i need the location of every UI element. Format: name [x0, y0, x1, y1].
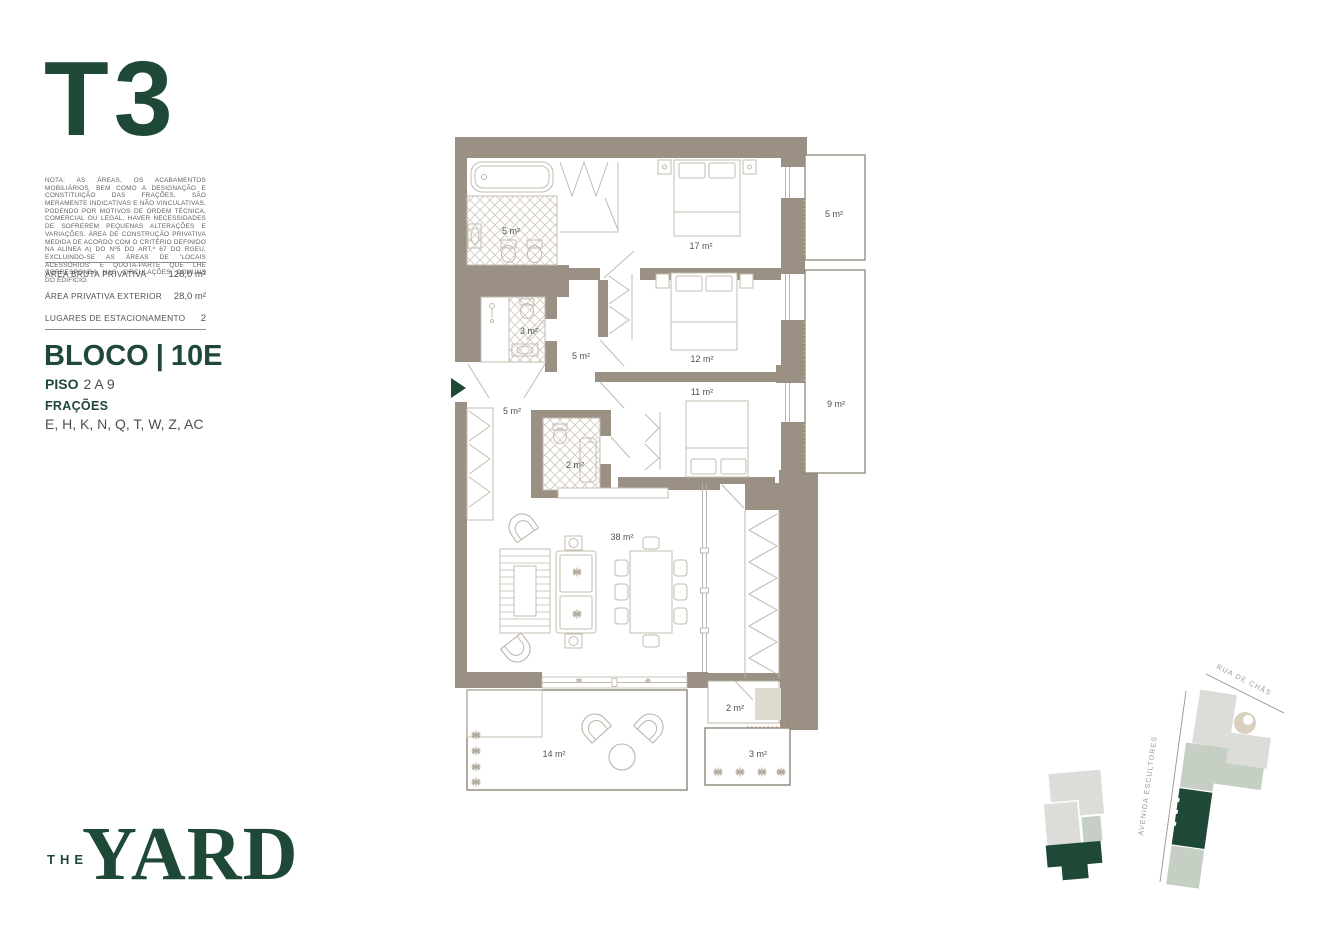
- map-highlight-building: [1046, 841, 1104, 882]
- room-area-label: 9 m²: [827, 399, 845, 409]
- logo-yard-text: YARD: [82, 816, 299, 892]
- map-highlight-building: [1172, 788, 1213, 849]
- unit-type-title: T3: [44, 46, 178, 152]
- table-row: ÁREA BRUTA PRIVATIVA 128,0 m²: [45, 263, 206, 285]
- room-area-label: 12 m²: [690, 354, 713, 364]
- terrace: [467, 690, 687, 790]
- bedroom-17-furniture: [560, 160, 756, 236]
- fractions-value: E, H, K, N, Q, T, W, Z, AC: [45, 416, 203, 432]
- balcony-5: [805, 155, 866, 260]
- balcony-9: [805, 270, 866, 473]
- area-label: ÁREA BRUTA PRIVATIVA: [45, 269, 146, 279]
- area-value: 128,0 m²: [169, 269, 207, 280]
- bedroom-11-furniture: [645, 401, 748, 477]
- kitchen-units: [467, 408, 493, 520]
- floor-range: PISO2 A 9: [45, 376, 115, 392]
- wc: [543, 418, 600, 490]
- street-label-rua-de-chas: RUA DE CHÃS: [1215, 662, 1273, 698]
- block-separator: |: [149, 340, 171, 372]
- bedroom-12-furniture: [609, 273, 753, 350]
- room-area-label: 11 m²: [691, 387, 713, 397]
- room-area-label: 5 m²: [572, 351, 590, 361]
- table-row: ÁREA PRIVATIVA EXTERIOR 28,0 m²: [45, 285, 206, 307]
- table-row: LUGARES DE ESTACIONAMENTO 2: [45, 307, 206, 329]
- balcony-3: [705, 728, 790, 785]
- room-area-label: 2 m²: [726, 703, 744, 713]
- map-building-cluster-right: [1165, 690, 1271, 889]
- brochure-page: T3 NOTA: AS ÁREAS, OS ACABAMENTOS MOBILI…: [0, 0, 1320, 929]
- area-label: ÁREA PRIVATIVA EXTERIOR: [45, 291, 162, 301]
- window-dim-label: 41: [645, 678, 651, 683]
- floor-label: PISO: [45, 376, 78, 392]
- room-area-label: 2 m²: [566, 460, 584, 470]
- living-window: 30 41: [542, 677, 687, 688]
- street-label-avenida-escultores: AVENIDA ESCULTORES: [1136, 735, 1159, 836]
- area-summary-table: ÁREA BRUTA PRIVATIVA 128,0 m² ÁREA PRIVA…: [45, 262, 206, 330]
- area-label: LUGARES DE ESTACIONAMENTO: [45, 313, 185, 323]
- bathroom-1: [467, 162, 557, 265]
- room-area-label: 17 m²: [689, 241, 712, 251]
- room-area-label: 5 m²: [825, 209, 843, 219]
- fractions: FRAÇÕES E, H, K, N, Q, T, W, Z, AC: [45, 399, 203, 432]
- room-area-label: 5 m²: [503, 406, 521, 416]
- window-dim-label: 30: [576, 678, 582, 683]
- room-area-label: 38 m²: [610, 532, 633, 542]
- winter-garden-shutters: [720, 484, 779, 678]
- entrance-arrow-icon: [451, 378, 466, 398]
- block-title: BLOCO|10E: [44, 340, 222, 373]
- living-furniture: [500, 488, 687, 667]
- storage-room: [708, 681, 787, 727]
- floor-plan: 30 41: [430, 120, 900, 810]
- location-map: RUA DE CHÃS AVENIDA ESCULTORES: [1030, 648, 1320, 929]
- block-value: 10E: [171, 340, 223, 372]
- map-building-cluster-left: [1039, 770, 1109, 882]
- fractions-label: FRAÇÕES: [45, 399, 203, 413]
- area-value: 2: [201, 313, 206, 324]
- glass-wall: [701, 483, 709, 672]
- area-value: 28,0 m²: [174, 291, 206, 302]
- floor-value: 2 A 9: [83, 376, 114, 392]
- room-area-label: 14 m²: [542, 749, 565, 759]
- block-label: BLOCO: [44, 340, 149, 372]
- room-area-label: 3 m²: [749, 749, 767, 759]
- room-area-label: 3 m²: [520, 326, 538, 336]
- room-area-label: 5 m²: [502, 226, 520, 236]
- entrance-doors: [468, 364, 545, 398]
